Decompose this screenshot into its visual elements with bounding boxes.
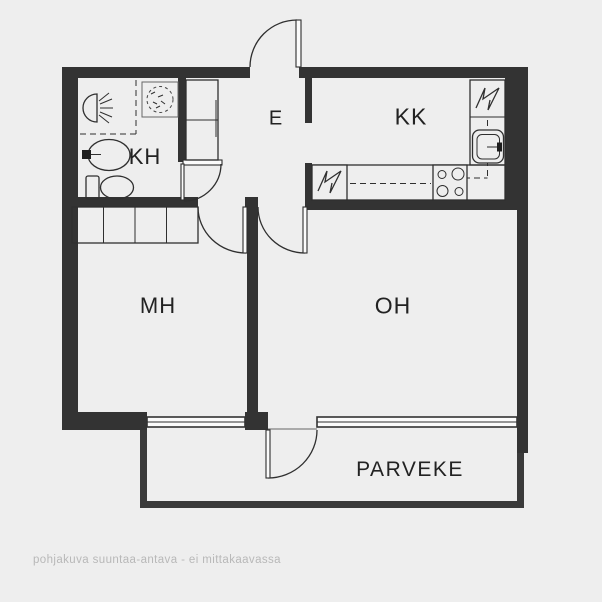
disclaimer-footnote: pohjakuva suuntaa-antava - ei mittakaava… xyxy=(33,554,281,566)
window-band xyxy=(317,417,517,427)
washbasin-icon xyxy=(82,140,130,171)
shower-head-icon xyxy=(83,93,113,123)
balcony-door xyxy=(266,429,317,478)
bedroom-door xyxy=(198,207,247,253)
floor-drain-icon xyxy=(142,82,178,117)
bathroom-fixtures xyxy=(80,80,178,199)
entrance-door xyxy=(250,20,301,67)
kitchen-sink-icon xyxy=(473,130,504,163)
bedroom-wardrobes xyxy=(72,207,198,243)
room-label-oh: OH xyxy=(375,293,412,320)
bathroom-door xyxy=(181,160,222,201)
stove-burners-icon xyxy=(433,165,467,200)
room-label-e: E xyxy=(269,108,283,131)
room-label-kk: KK xyxy=(395,104,428,131)
shower-enclosure xyxy=(80,80,136,134)
hall-closet xyxy=(186,80,218,160)
kitchen-fixtures xyxy=(312,80,505,200)
toilet-icon xyxy=(86,176,134,199)
floor-plan-drawing xyxy=(0,0,602,602)
living-room-door xyxy=(258,207,307,253)
room-label-parveke: PARVEKE xyxy=(356,458,464,482)
fridge-appliance-icon xyxy=(470,88,505,117)
floor-plan: KH E KK MH OH PARVEKE pohjakuva suuntaa-… xyxy=(0,0,602,602)
electrical-appliance-icon xyxy=(312,165,347,200)
room-label-mh: MH xyxy=(140,293,176,319)
window-band xyxy=(147,417,245,427)
walls xyxy=(62,67,528,508)
windows xyxy=(147,417,517,427)
room-label-kh: KH xyxy=(129,144,162,170)
